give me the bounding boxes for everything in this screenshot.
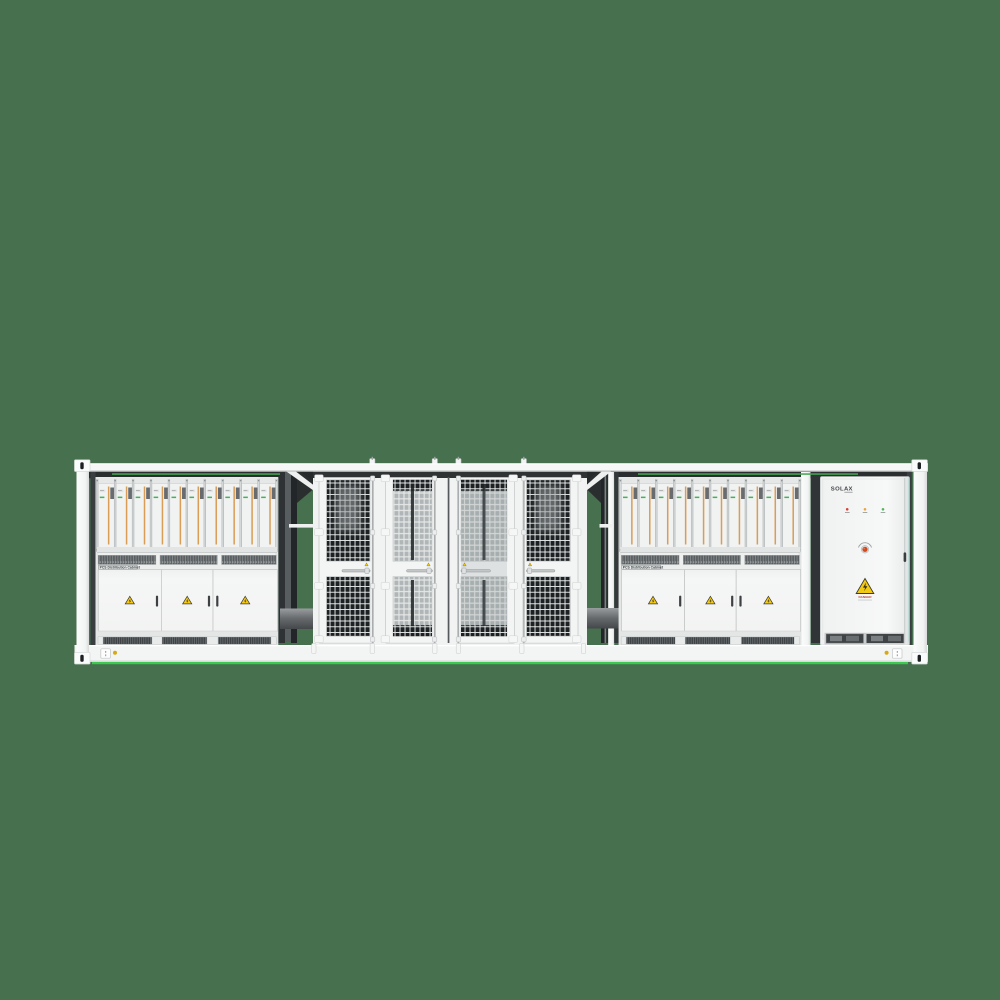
svg-text:SOLAX: SOLAX bbox=[831, 486, 853, 492]
svg-text:PCS Distribution Cabinet: PCS Distribution Cabinet bbox=[100, 565, 141, 569]
svg-text:DANGER: DANGER bbox=[858, 595, 872, 599]
